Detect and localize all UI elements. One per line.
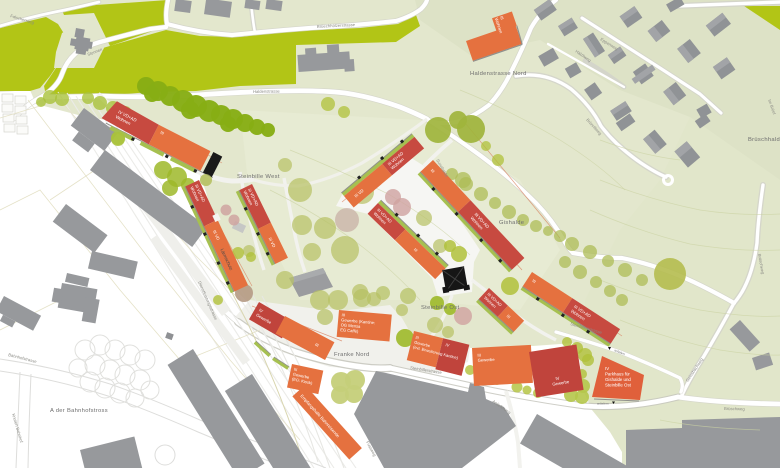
- svg-text:anliefern: anliefern: [597, 402, 609, 406]
- svg-text:Parkhaus für: Parkhaus für: [605, 372, 630, 377]
- svg-text:Steinbille West: Steinbille West: [237, 174, 280, 180]
- svg-text:Gewerbe: Gewerbe: [478, 357, 496, 363]
- svg-text:A der Bahnhofstross: A der Bahnhofstross: [50, 408, 108, 414]
- svg-text:Gishalde und: Gishalde und: [605, 377, 631, 382]
- svg-text:IV: IV: [605, 366, 609, 371]
- svg-text:Gishalde: Gishalde: [499, 220, 524, 226]
- svg-text:Haldenstrasse: Haldenstrasse: [253, 89, 281, 94]
- svg-text:Brüschweg: Brüschweg: [724, 406, 745, 411]
- svg-text:Steinbille Ost: Steinbille Ost: [605, 383, 632, 388]
- svg-text:Franke Nord: Franke Nord: [334, 352, 370, 358]
- svg-text:Haldenstrasse Nord: Haldenstrasse Nord: [470, 71, 527, 77]
- svg-text:Steinbille Ost: Steinbille Ost: [421, 305, 459, 311]
- svg-text:Brüschhalde: Brüschhalde: [748, 137, 780, 143]
